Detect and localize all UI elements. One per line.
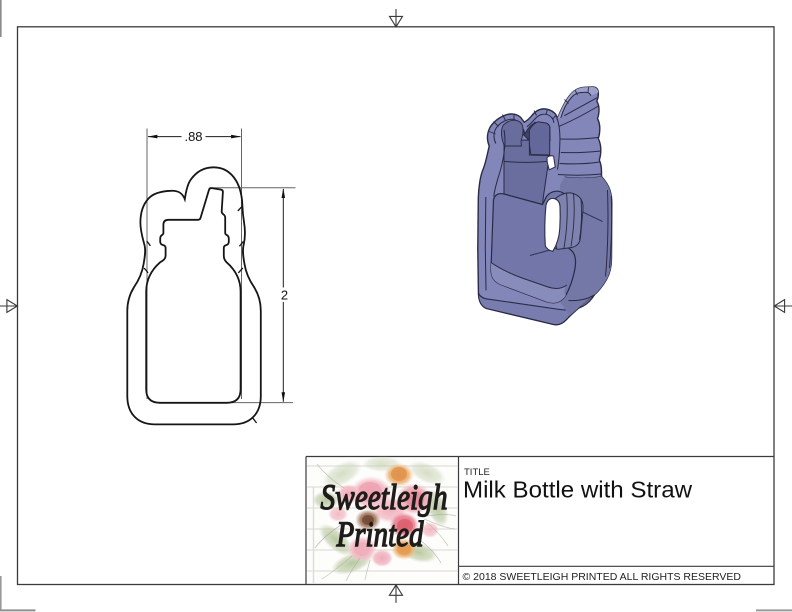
svg-text:2: 2 [281,288,288,303]
svg-text:Sweetleigh: Sweetleigh [321,477,448,517]
svg-text:Printed: Printed [336,514,425,554]
svg-text:© 2018 SWEETLEIGH PRINTED AL: © 2018 SWEETLEIGH PRINTED ALL RIGHTS RES… [463,571,742,583]
svg-text:Milk Bottle with Straw: Milk Bottle with Straw [463,477,693,503]
svg-text:.88: .88 [184,129,202,144]
